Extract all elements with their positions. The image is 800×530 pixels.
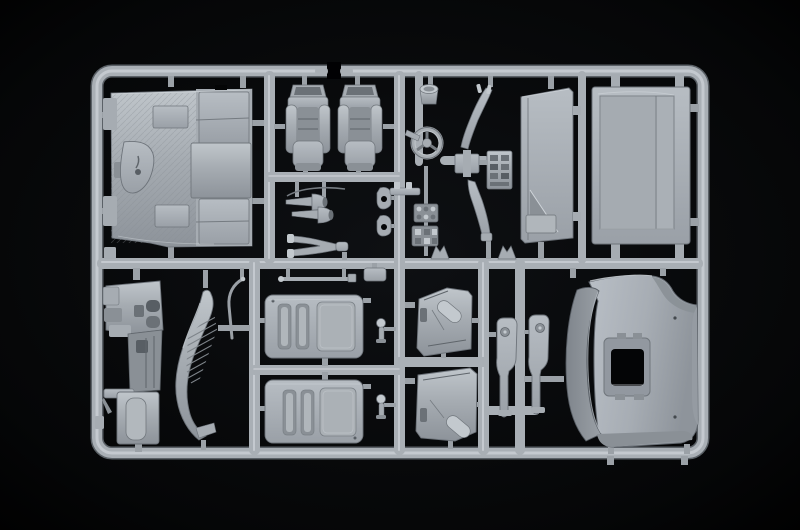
filter-cup-part	[420, 85, 438, 105]
door-card-upper-part	[417, 288, 472, 356]
seat-left-part	[286, 85, 330, 171]
roof-panel-part	[566, 275, 698, 447]
curtain-panel-part	[521, 88, 581, 243]
door-card-lower-part	[416, 368, 477, 441]
sunroof-opening	[611, 349, 644, 386]
seat-right-part	[338, 85, 382, 171]
rail-tag	[95, 416, 104, 429]
cab-floor-part	[103, 85, 252, 247]
sprue-photo	[0, 0, 800, 530]
small-box-part	[364, 268, 386, 281]
rail-tag	[104, 247, 116, 259]
bunk-lower-part	[265, 380, 363, 443]
bunk-upper-part	[265, 295, 363, 358]
rear-panel-part	[592, 87, 690, 244]
lever-junction	[455, 150, 479, 177]
sprue-canvas	[0, 0, 800, 530]
